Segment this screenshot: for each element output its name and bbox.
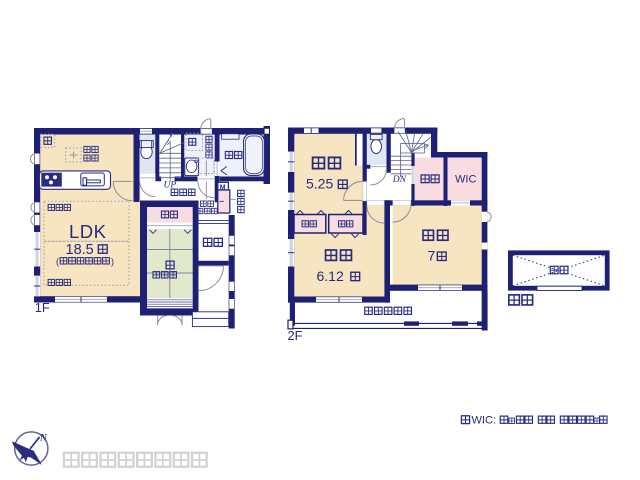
svg-text:LDK: LDK [69, 221, 107, 242]
svg-text:18.5: 18.5 [66, 242, 94, 258]
svg-text:N: N [39, 433, 48, 443]
svg-text:DN: DN [392, 175, 407, 185]
svg-text:): ) [111, 257, 114, 267]
svg-text:(: ( [56, 257, 59, 267]
svg-text:5.25: 5.25 [306, 176, 333, 192]
svg-text:WIC: WIC [455, 174, 476, 186]
svg-text:6.12: 6.12 [317, 268, 344, 284]
svg-text:WIC:: WIC: [472, 415, 496, 427]
svg-text:2F: 2F [288, 328, 303, 343]
svg-text:1F: 1F [35, 300, 50, 315]
svg-text:7: 7 [428, 248, 436, 264]
